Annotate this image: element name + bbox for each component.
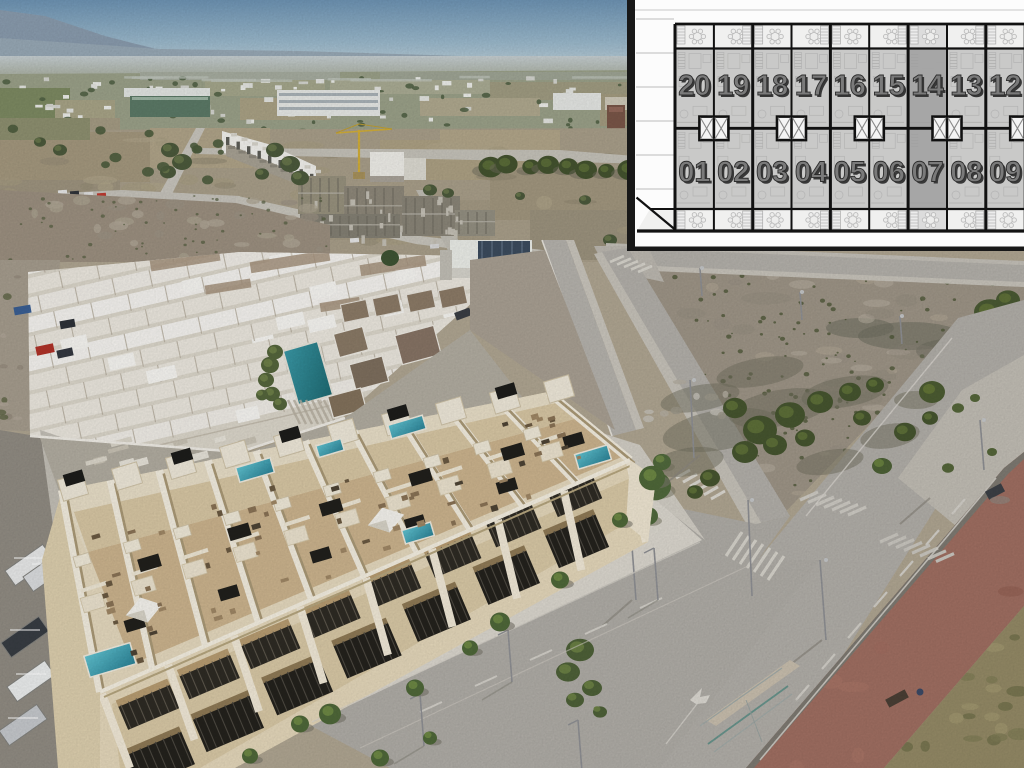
svg-text:19: 19 [717,70,749,102]
svg-text:06: 06 [873,157,905,189]
svg-text:17: 17 [795,70,827,102]
svg-text:08: 08 [950,157,982,189]
svg-text:01: 01 [678,157,710,189]
svg-text:16: 16 [834,70,866,102]
svg-text:05: 05 [834,157,866,189]
svg-text:18: 18 [756,70,788,102]
svg-text:20: 20 [678,70,710,102]
svg-text:09: 09 [989,157,1021,189]
svg-text:03: 03 [756,157,788,189]
svg-text:02: 02 [717,157,749,189]
svg-text:12: 12 [989,70,1021,102]
svg-text:04: 04 [795,157,827,189]
svg-text:07: 07 [911,157,943,189]
svg-text:15: 15 [873,70,905,102]
svg-text:14: 14 [911,70,943,102]
svg-text:13: 13 [950,70,982,102]
